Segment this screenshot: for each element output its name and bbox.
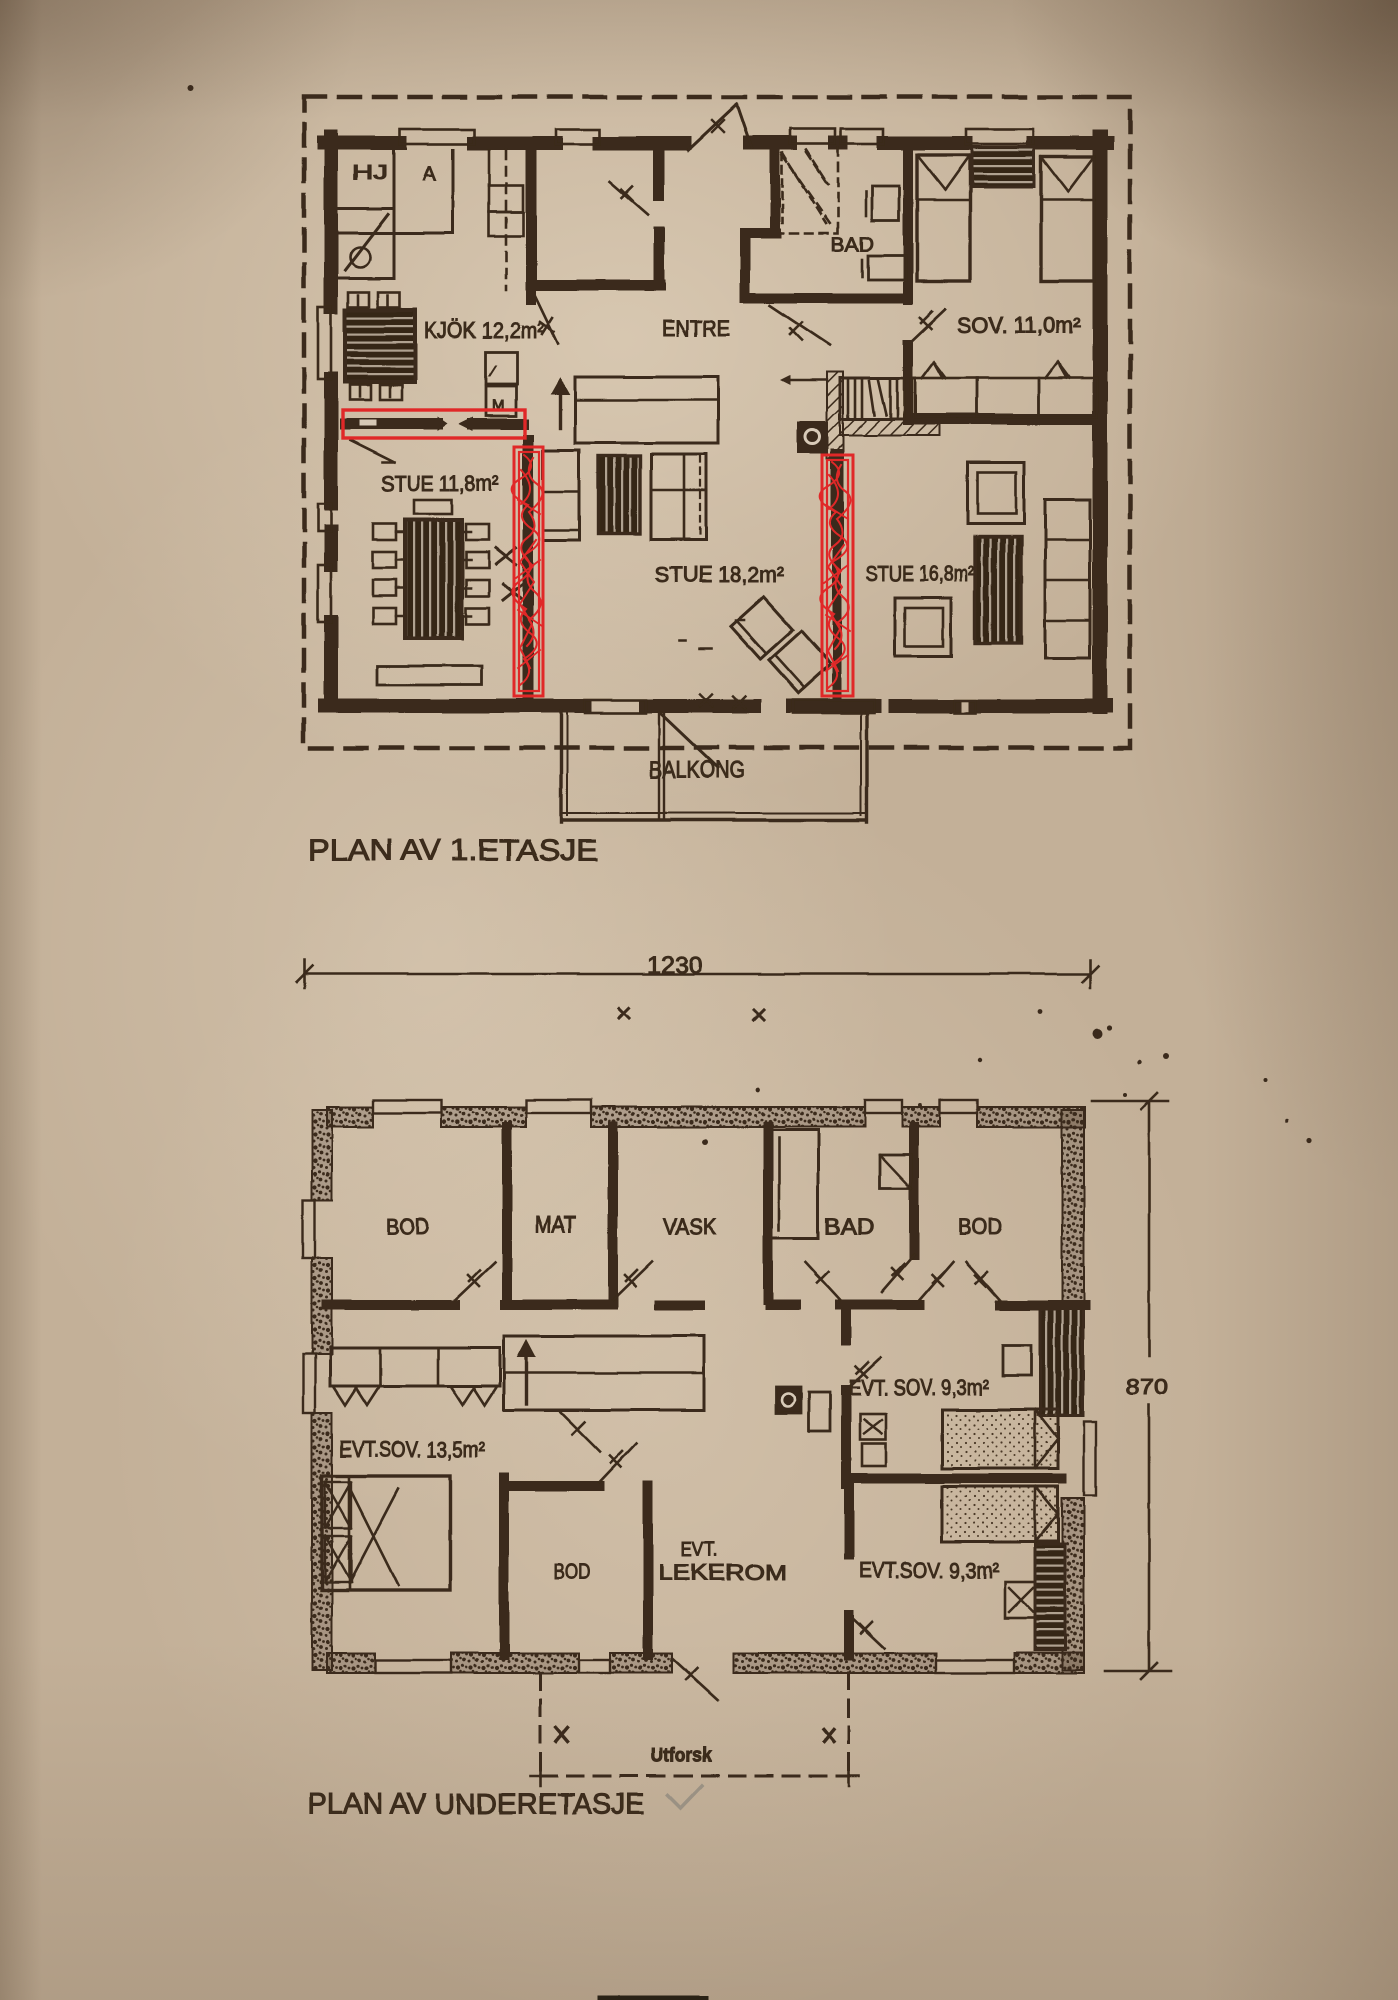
- svg-text:PLAN AV UNDERETASJE: PLAN AV UNDERETASJE: [308, 1788, 645, 1821]
- svg-text:BAD: BAD: [824, 1214, 874, 1239]
- svg-text:VASK: VASK: [663, 1214, 716, 1239]
- svg-text:EVT. SOV. 9,3m²: EVT. SOV. 9,3m²: [849, 1375, 989, 1400]
- svg-text:LEKEROM: LEKEROM: [658, 1560, 787, 1585]
- svg-text:EVT.SOV. 9,3m²: EVT.SOV. 9,3m²: [859, 1558, 999, 1583]
- svg-text:HJ: HJ: [352, 162, 388, 184]
- svg-text:PLAN AV 1.ETASJE: PLAN AV 1.ETASJE: [308, 834, 598, 867]
- svg-text:BOD: BOD: [386, 1214, 429, 1239]
- svg-text:SOV. 11,0m²: SOV. 11,0m²: [957, 313, 1081, 338]
- svg-text:STUE 18,2m²: STUE 18,2m²: [655, 562, 784, 587]
- svg-text:⁄: ⁄: [488, 363, 497, 380]
- svg-text:STUE 11,8m²: STUE 11,8m²: [381, 471, 499, 496]
- svg-text:BAD: BAD: [831, 234, 874, 256]
- svg-text:EVT.: EVT.: [681, 1539, 718, 1561]
- svg-text:MAT: MAT: [535, 1212, 576, 1237]
- svg-text:ENTRE: ENTRE: [662, 316, 730, 341]
- svg-text:BALKONG: BALKONG: [649, 757, 745, 784]
- svg-text:BOD: BOD: [554, 1559, 591, 1584]
- svg-text:A: A: [423, 163, 437, 185]
- svg-text:870: 870: [1126, 1374, 1168, 1399]
- svg-text:EVT.SOV. 13,5m²: EVT.SOV. 13,5m²: [339, 1437, 485, 1462]
- svg-text:BOD: BOD: [958, 1214, 1002, 1239]
- svg-text:1230: 1230: [647, 952, 703, 979]
- svg-text:Utforsk: Utforsk: [650, 1745, 712, 1767]
- svg-text:STUE 16,8m²: STUE 16,8m²: [866, 561, 974, 586]
- svg-text:KJÖK 12,2m²: KJÖK 12,2m²: [424, 318, 544, 343]
